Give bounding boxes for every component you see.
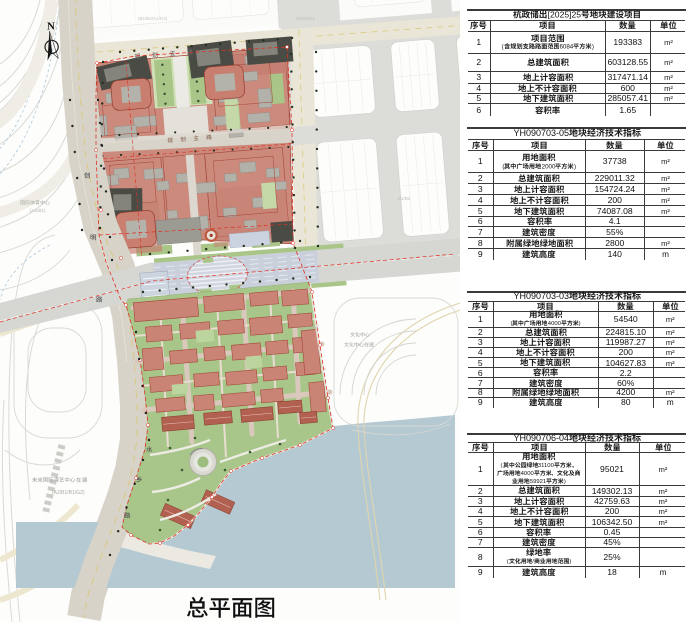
svg-text:04/B2/G1: 04/B2/G1 <box>296 16 316 21</box>
svg-text:(A1/B1): (A1/B1) <box>30 208 46 213</box>
svg-text:(A2/B1/B1/G2): (A2/B1/B1/G2) <box>52 490 85 496</box>
svg-text:(B1/B2/A1/G2): (B1/B2/A1/G2) <box>138 16 168 21</box>
svg-text:N: N <box>47 21 55 33</box>
svg-text:B1/B2: B1/B2 <box>398 196 411 201</box>
